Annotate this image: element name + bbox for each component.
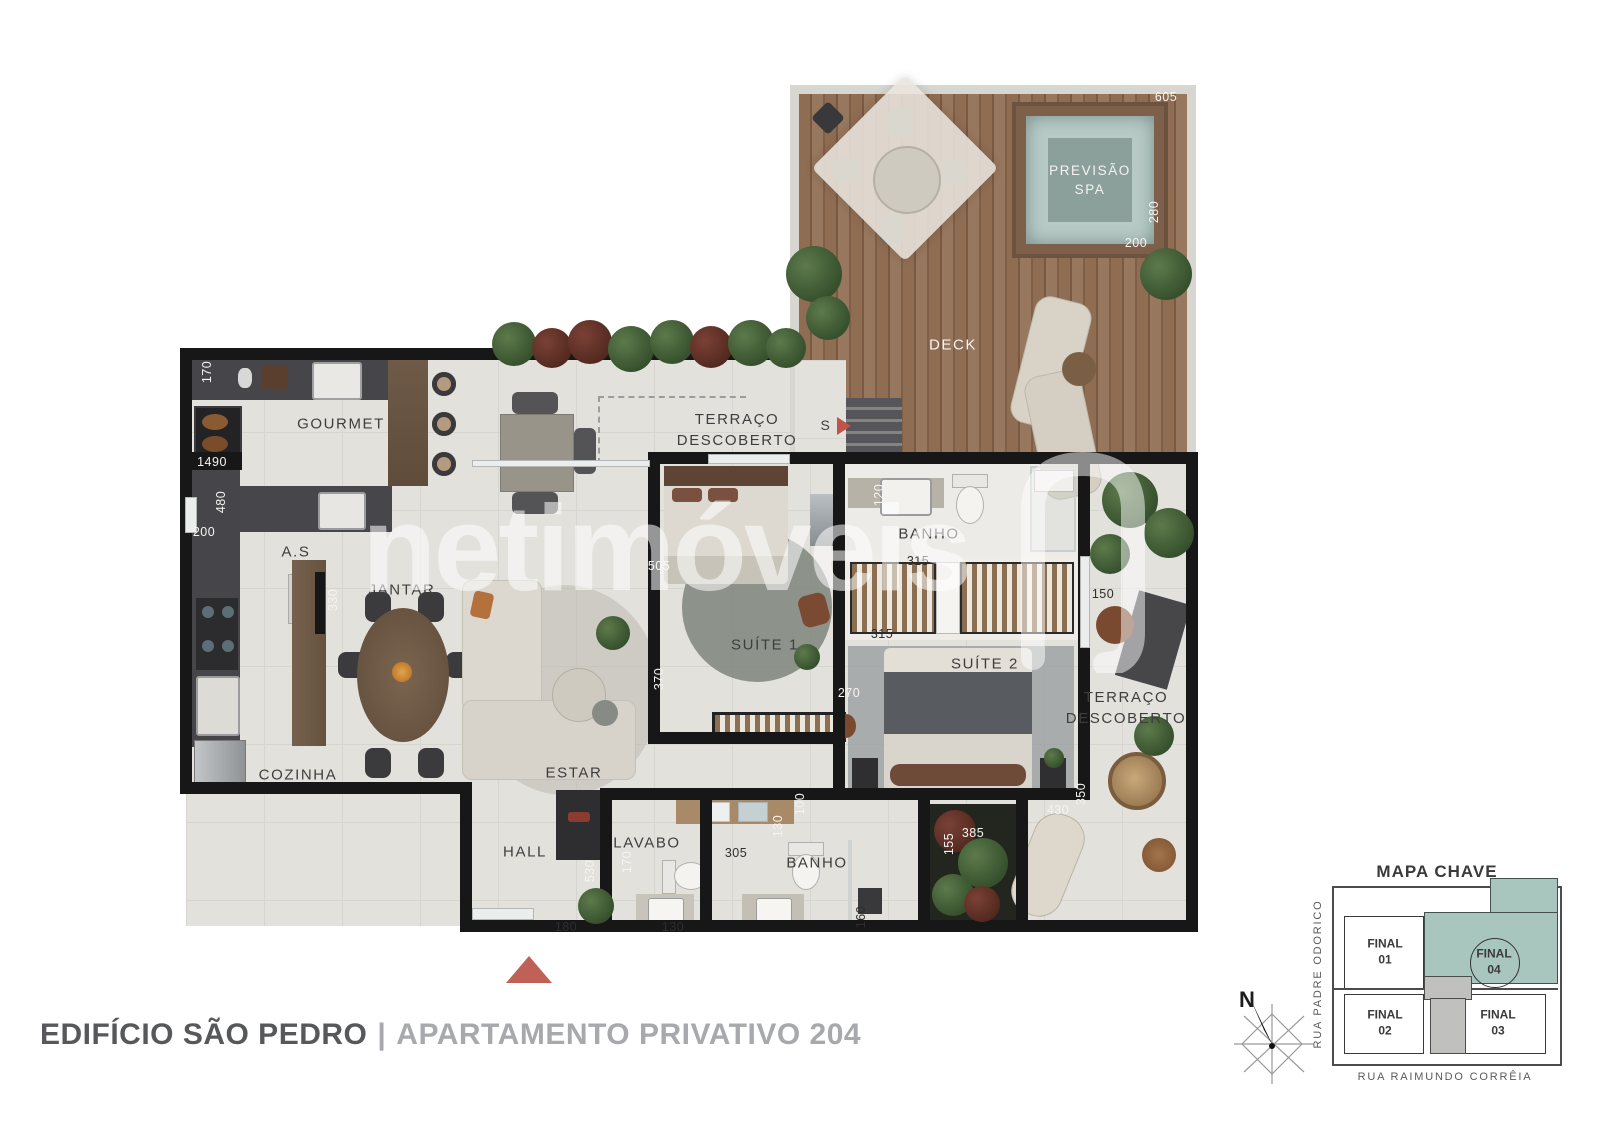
plant xyxy=(786,246,842,302)
dimension-label-25: 305 xyxy=(725,846,747,860)
dimension-label-17: 100 xyxy=(793,793,807,815)
coffee-machine xyxy=(262,366,288,390)
spa-label: PREVISÃO SPA xyxy=(1049,162,1131,200)
deck-step-landing xyxy=(794,360,846,452)
wall-garden-right xyxy=(1016,800,1028,932)
cooktop-burner xyxy=(222,606,234,618)
room-label-terraco-top: TERRAÇO DESCOBERTO xyxy=(677,409,797,451)
plant xyxy=(1140,248,1192,300)
dimension-label-8: 505 xyxy=(648,559,670,573)
floor-plan-page: PREVISÃO SPA xyxy=(0,0,1600,1131)
suite2-bench-pillows xyxy=(890,764,1026,786)
building-name: EDIFÍCIO SÃO PEDRO xyxy=(40,1018,367,1051)
laundry-sink xyxy=(318,492,366,530)
banho1-sink xyxy=(880,478,932,516)
street-bottom-label: RUA RAIMUNDO CORRÊIA xyxy=(1358,1071,1533,1083)
entry-door xyxy=(472,908,534,920)
dining-chair xyxy=(365,748,391,778)
dimension-label-16: 350 xyxy=(1074,783,1088,805)
room-label-estar: ESTAR xyxy=(546,763,603,784)
cooktop-burner xyxy=(202,640,214,652)
grill-food xyxy=(202,414,228,430)
cooktop-burner xyxy=(222,640,234,652)
bar-stool-1 xyxy=(432,372,456,396)
plant xyxy=(1044,748,1064,768)
suite1-pillow xyxy=(708,488,738,502)
plant xyxy=(1144,508,1194,558)
banho2-sink xyxy=(756,898,792,922)
estar-terrace-glass xyxy=(472,460,650,467)
room-label-cozinha: COZINHA xyxy=(259,765,338,786)
room-label-deck: DECK xyxy=(929,335,977,356)
deck-table xyxy=(873,146,941,214)
bar-stool-3 xyxy=(432,452,456,476)
bar-stool-2 xyxy=(432,412,456,436)
dimension-label-26: 160 xyxy=(854,906,868,928)
dimension-label-23: 180 xyxy=(555,920,577,934)
suite2-nightstand xyxy=(852,758,878,788)
room-label-hall: HALL xyxy=(503,842,547,863)
bench-towel xyxy=(738,802,768,822)
banho1-shower-tray xyxy=(1034,470,1074,492)
dimension-label-13: 120 xyxy=(872,484,886,506)
cooktop-burner xyxy=(202,606,214,618)
dimension-label-3: 170 xyxy=(200,361,214,383)
dimension-label-21: 530 xyxy=(583,860,597,882)
title-separator: | xyxy=(367,1018,396,1051)
room-label-banho-suite: BANHO xyxy=(898,524,959,545)
suite1-headboard xyxy=(664,466,788,486)
pouf xyxy=(1142,838,1176,872)
lounger-side-table xyxy=(1062,352,1096,386)
side-table xyxy=(592,700,618,726)
banho1-toilet xyxy=(956,486,984,524)
key-map-unit2-label: FINAL 02 xyxy=(1367,1007,1402,1038)
wall-banho-garden xyxy=(918,800,930,932)
wall-suite1-left xyxy=(648,452,660,744)
plant xyxy=(650,320,694,364)
plant xyxy=(690,326,732,368)
terrace-chair xyxy=(512,492,558,514)
wall-left xyxy=(180,348,192,794)
suite2-blanket xyxy=(884,672,1032,734)
suite2-terrace-door xyxy=(1080,556,1090,648)
wall-suite1-bottom xyxy=(648,732,845,744)
plant xyxy=(568,320,612,364)
deck-stairs xyxy=(846,398,902,452)
plant xyxy=(608,326,654,372)
key-map-unit3-label: FINAL 03 xyxy=(1480,1007,1515,1038)
dimension-label-14: 150 xyxy=(1092,587,1114,601)
dimension-label-2: 200 xyxy=(1125,236,1147,250)
terrace-round-table xyxy=(1096,606,1134,644)
dining-centerpiece xyxy=(392,662,412,682)
page-title: EDIFÍCIO SÃO PEDRO|APARTAMENTO PRIVATIVO… xyxy=(40,1018,861,1052)
back-counter xyxy=(240,486,392,532)
suite1-blanket xyxy=(664,556,788,584)
dimension-label-4: 1490 xyxy=(197,455,227,469)
wall-island-stub xyxy=(315,572,325,634)
wall-bottom-rooms-top xyxy=(600,788,1090,800)
grill-food xyxy=(202,436,228,452)
console-red-item xyxy=(568,812,590,822)
suite1-tv-panel xyxy=(810,494,834,546)
suite1-pillow xyxy=(672,488,702,502)
key-map-core-upper xyxy=(1424,976,1472,1000)
plant xyxy=(578,888,614,924)
dining-chair xyxy=(418,748,444,778)
room-label-banho-social: BANHO xyxy=(786,853,847,874)
room-label-terraco-right: TERRAÇO DESCOBERTO xyxy=(1066,687,1186,729)
wall-suite1-right xyxy=(833,452,845,800)
gourmet-sink xyxy=(312,362,362,400)
plant xyxy=(766,328,806,368)
wall-lavabo-banho xyxy=(700,800,712,932)
closet-rack-right xyxy=(960,562,1074,634)
dimension-label-20: 385 xyxy=(962,826,984,840)
dimension-label-15: 430 xyxy=(1047,803,1069,817)
banho2-shower-glass xyxy=(848,840,852,926)
dimension-label-22: 170 xyxy=(620,851,634,873)
plant xyxy=(596,616,630,650)
entrance-arrow-s xyxy=(837,417,851,435)
kitchen-sink xyxy=(196,676,240,736)
dimension-label-10: 270 xyxy=(838,686,860,700)
terrace-chair xyxy=(574,428,596,474)
plant xyxy=(532,328,572,368)
entrance-s-label: S xyxy=(821,416,832,436)
closet-shelf-center xyxy=(936,562,960,634)
lavabo-sink xyxy=(648,898,684,922)
key-map-unit1-label: FINAL 01 xyxy=(1367,936,1402,967)
room-label-as: A.S xyxy=(282,542,311,563)
dimension-label-7: 330 xyxy=(326,589,340,611)
closet-rack-left xyxy=(850,562,936,634)
key-map-unit4-label: FINAL 04 xyxy=(1476,946,1511,977)
terrace-table xyxy=(500,414,574,492)
entrance-arrow-main xyxy=(506,956,552,983)
compass-rose xyxy=(1222,992,1322,1092)
plant xyxy=(806,296,850,340)
dimension-label-19: 155 xyxy=(942,833,956,855)
dimension-label-5: 480 xyxy=(214,491,228,513)
room-label-suite2: SUÍTE 2 xyxy=(951,654,1019,675)
dimension-label-0: 605 xyxy=(1155,90,1177,104)
suite1-terrace-door xyxy=(708,454,790,464)
plant xyxy=(492,322,536,366)
street-left-label: RUA PADRE ODORICO xyxy=(1312,900,1324,1049)
dimension-label-6: 200 xyxy=(193,525,215,539)
dimension-label-9: 370 xyxy=(652,668,666,690)
dimension-label-1: 280 xyxy=(1147,201,1161,223)
dimension-label-24: 130 xyxy=(662,920,684,934)
bar-counter xyxy=(388,360,428,486)
dimension-label-12: 315 xyxy=(871,627,893,641)
tv-console xyxy=(556,790,604,860)
room-label-suite1: SUÍTE 1 xyxy=(731,635,799,656)
compass-n-label: N xyxy=(1239,987,1255,1013)
key-map-title: MAPA CHAVE xyxy=(1376,861,1497,883)
plant xyxy=(964,886,1000,922)
key-map-core-lower xyxy=(1430,998,1466,1054)
wicker-chair xyxy=(1108,752,1166,810)
wall-step xyxy=(460,782,472,932)
unit-name: APARTAMENTO PRIVATIVO 204 xyxy=(396,1018,861,1051)
dimension-label-11: 315 xyxy=(907,554,929,568)
dimension-label-18: 130 xyxy=(771,815,785,837)
room-label-jantar: JANTAR xyxy=(369,580,436,601)
wall-deck-interface xyxy=(836,452,1198,464)
plant xyxy=(1090,534,1130,574)
terrace-chair xyxy=(512,392,558,414)
room-label-gourmet: GOURMET xyxy=(297,414,385,435)
kettle xyxy=(238,368,252,388)
